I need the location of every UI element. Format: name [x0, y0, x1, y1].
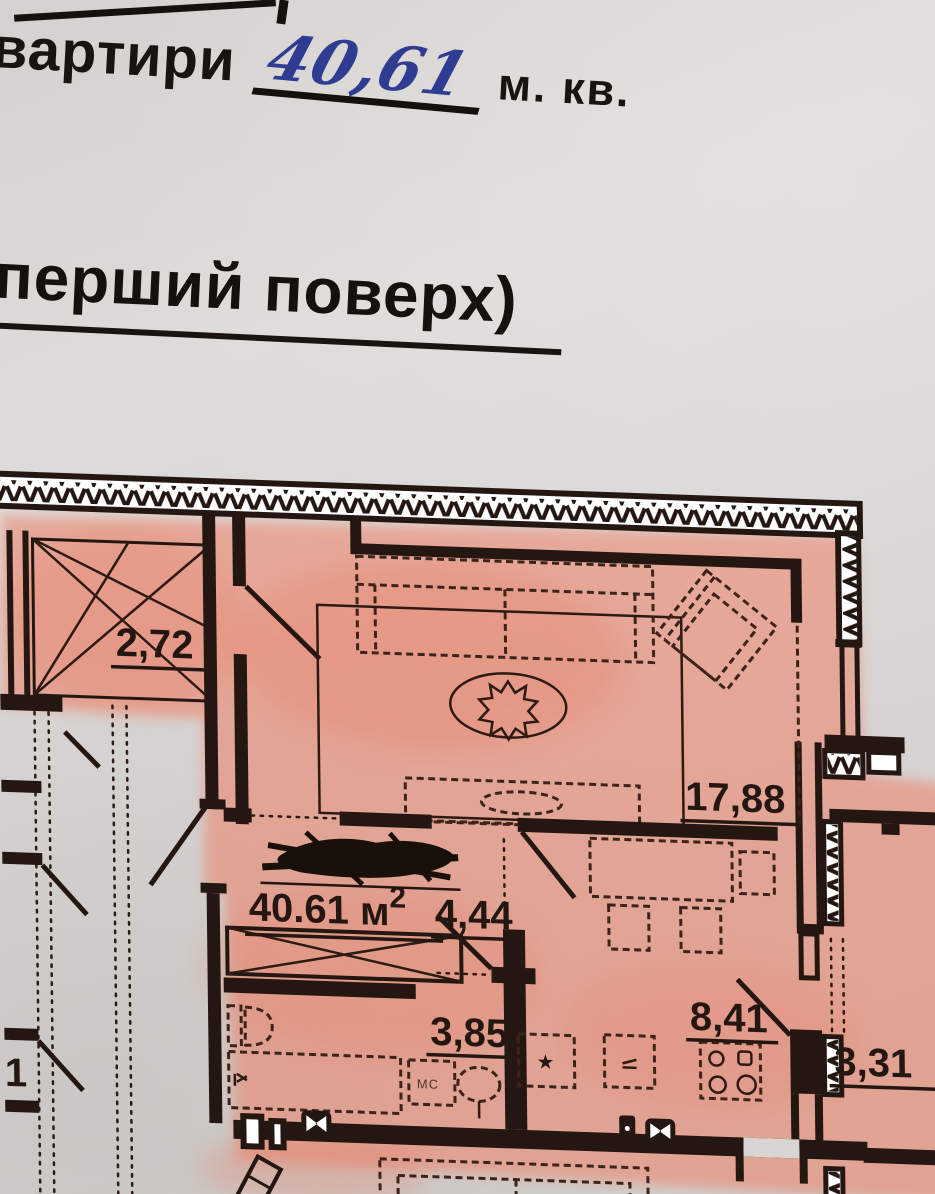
room-area-label: 8,41 — [690, 995, 768, 1042]
washer-label: МС — [417, 1076, 439, 1092]
photographed-floor-plan-page: вартири40,61м. кв. перший поверх) — [0, 0, 935, 1194]
exterior-wall-right-upper — [838, 533, 859, 644]
right-mid-wall-block — [824, 735, 905, 780]
floor-plan-drawing: МС ★ — [0, 0, 935, 1194]
building-corridor: 1 — [0, 702, 132, 1194]
room-area-label: 4,44 — [435, 892, 514, 939]
door-swing — [38, 1041, 83, 1091]
vent-icon — [301, 1110, 331, 1137]
entrance-door-swing — [150, 805, 207, 887]
room-area-label: 3,31 — [834, 1040, 912, 1087]
door-swing — [65, 732, 99, 767]
room-area-label: 2,72 — [115, 621, 193, 668]
star-icon: ★ — [536, 1051, 554, 1074]
corridor-label: 1 — [5, 1051, 28, 1096]
door-swing — [42, 865, 87, 915]
room-area-label: 17,88 — [685, 775, 786, 822]
room-area-label: 3,85 — [430, 1010, 508, 1057]
